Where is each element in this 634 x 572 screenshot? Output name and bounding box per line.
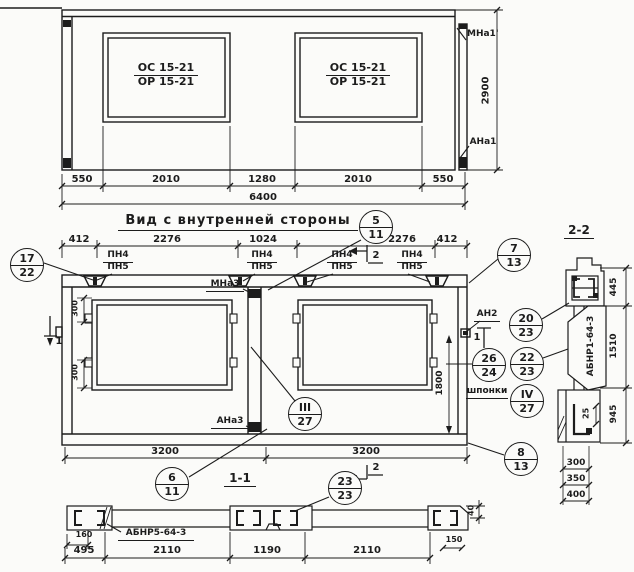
- dim-445: 445: [610, 267, 620, 307]
- dim-1510: 1510: [610, 326, 620, 366]
- callout-top-number: IV: [521, 389, 534, 400]
- dim-550-right: 550: [428, 174, 458, 185]
- section-marker-1-right: 1: [472, 332, 482, 343]
- dim-6400-total: 6400: [243, 192, 283, 203]
- callout-top-number: 26: [481, 353, 496, 364]
- callout-top-number: 23: [337, 476, 352, 487]
- mark-mna1: МНа1': [467, 30, 497, 40]
- pn5-label: ПН5: [251, 263, 272, 273]
- dim-300-bottom: 300: [72, 352, 81, 392]
- section-marker-1-left: 1: [54, 336, 64, 347]
- dim-1190: 1190: [250, 545, 284, 556]
- dim-2900-height: 2900: [481, 71, 492, 111]
- callout-17-22: 17 22: [10, 248, 44, 282]
- dim-1024: 1024: [246, 234, 280, 245]
- dim-3200-right: 3200: [346, 446, 386, 457]
- dim-495: 495: [70, 545, 98, 556]
- dim-2110-left: 2110: [149, 545, 185, 556]
- window-series-bottom: ОР 15-21: [330, 76, 386, 88]
- callout-bottom-number: 23: [519, 366, 534, 377]
- callout-bottom-number: 27: [297, 416, 312, 427]
- callout-23-23: 23 23: [328, 471, 362, 505]
- section-2-2-title: 2-2: [564, 224, 594, 239]
- panel-drawing-sheet: ОС 15-21 ОР 15-21 ОС 15-21 ОР 15-21 550 …: [0, 0, 634, 572]
- dim-3200-left: 3200: [145, 446, 185, 457]
- dim-160: 160: [70, 531, 98, 540]
- callout-top-number: 22: [519, 352, 534, 363]
- callout-top-number: 20: [518, 313, 533, 324]
- callout-top-number: 5: [372, 215, 380, 226]
- pn5-label: ПН5: [331, 263, 352, 273]
- rebar-mark-pn4-pn5: ПН4 ПН5: [247, 251, 277, 273]
- pn4-label: ПН4: [331, 251, 352, 261]
- pn4-label: ПН4: [251, 251, 272, 261]
- dim-1280: 1280: [246, 174, 278, 185]
- dim-400-stack: 400: [563, 491, 589, 501]
- mark-ana3: АНа3: [211, 417, 249, 429]
- callout-26-24: 26 24: [472, 348, 506, 382]
- callout-bottom-number: 13: [506, 257, 521, 268]
- callout-bottom-number: 11: [164, 486, 179, 497]
- callout-bottom-number: 27: [519, 403, 534, 414]
- dim-550-left: 550: [67, 174, 97, 185]
- main-view-panel: [56, 275, 470, 445]
- dim-40: 40: [468, 490, 477, 530]
- dim-2276-left: 2276: [149, 234, 185, 245]
- dim-350-stack: 350: [563, 475, 589, 485]
- main-view-dim-ticks: [59, 243, 470, 461]
- pn4-label: ПН4: [107, 251, 128, 261]
- callout-bottom-number: 23: [518, 327, 533, 338]
- callout-5-11: 5 11: [359, 210, 393, 244]
- mark-an2: АН2: [474, 310, 500, 322]
- pn5-label: ПН5: [401, 263, 422, 273]
- callout-bottom-number: 24: [481, 367, 496, 378]
- pn5-label: ПН5: [107, 263, 128, 273]
- rebar-mark-pn4-pn5: ПН4 ПН5: [327, 251, 357, 273]
- dim-150: 150: [442, 536, 466, 545]
- drawing-linework: [0, 0, 634, 572]
- dim-2010-right: 2010: [341, 174, 375, 185]
- callout-III-27: III 27: [288, 397, 322, 431]
- dim-945: 945: [610, 394, 620, 434]
- callout-bottom-number: 13: [513, 461, 528, 472]
- callout-bottom-number: 23: [337, 490, 352, 501]
- section-1-1-title: 1-1: [224, 472, 256, 487]
- callout-8-13: 8 13: [504, 442, 538, 476]
- mark-mna3: МНа3: [206, 280, 244, 292]
- callout-IV-27: IV 27: [510, 384, 544, 418]
- dim-1800: 1800: [436, 363, 446, 403]
- window-series-bottom: ОР 15-21: [138, 76, 194, 88]
- pn4-label: ПН4: [401, 251, 422, 261]
- window-series-top: ОС 15-21: [330, 62, 386, 74]
- callout-top-number: III: [299, 402, 311, 413]
- dim-2010-left: 2010: [149, 174, 183, 185]
- window-opening-label: ОС 15-21 ОР 15-21: [326, 62, 390, 88]
- top-view-anchor-marks: [63, 20, 467, 168]
- part-label-abnr5: АБНР5-64-3: [118, 529, 194, 541]
- part-label-abnr1: АБНР1-64-3: [587, 309, 597, 383]
- callout-top-number: 17: [19, 253, 34, 264]
- window-opening-label: ОС 15-21 ОР 15-21: [134, 62, 198, 88]
- callout-20-23: 20 23: [509, 308, 543, 342]
- dim-412-left: 412: [64, 234, 94, 245]
- callout-top-number: 6: [168, 472, 176, 483]
- top-view-panel: [0, 8, 467, 170]
- section-marker-arrows: [47, 247, 487, 483]
- dim-25: 25: [583, 393, 592, 433]
- section-marker-2-bottom: 2: [370, 462, 382, 473]
- section-1-1-profile: [67, 506, 468, 530]
- view-title: Вид с внутренней стороны: [118, 213, 358, 231]
- callout-top-number: 8: [517, 447, 525, 458]
- window-series-top: ОС 15-21: [138, 62, 194, 74]
- callout-bottom-number: 22: [19, 267, 34, 278]
- callout-22-23: 22 23: [510, 347, 544, 381]
- callout-6-11: 6 11: [155, 467, 189, 501]
- dim-2110-right: 2110: [349, 545, 385, 556]
- callout-7-13: 7 13: [497, 238, 531, 272]
- dim-300-top: 300: [72, 288, 81, 328]
- callout-top-number: 7: [510, 243, 518, 254]
- dim-300-stack: 300: [563, 459, 589, 469]
- keys-label: шпонки: [466, 387, 508, 399]
- rebar-mark-pn4-pn5: ПН4 ПН5: [397, 251, 427, 273]
- section-marker-2-top: 2: [370, 250, 382, 261]
- callout-bottom-number: 11: [368, 229, 383, 240]
- mark-ana1: АНа1: [469, 138, 497, 148]
- dim-412-right: 412: [432, 234, 462, 245]
- rebar-mark-pn4-pn5: ПН4 ПН5: [103, 251, 133, 273]
